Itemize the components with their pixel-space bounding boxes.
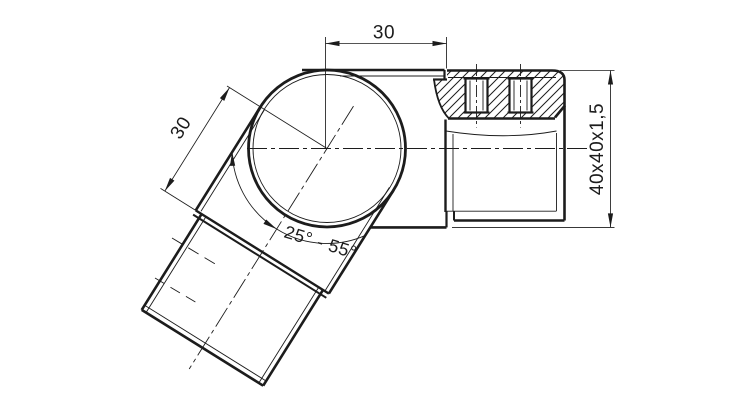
technical-drawing-svg: 30 30 25° - 55° 40x40x1,5 (0, 0, 732, 413)
clamp-block (434, 71, 565, 119)
dimension-top: 30 (326, 23, 447, 149)
socket-transition-curve (446, 131, 557, 136)
dim-top-width: 30 (373, 23, 395, 44)
dim-side-length: 30 (167, 113, 197, 143)
dim-side-line (165, 88, 230, 192)
tube-upper-edge (142, 214, 202, 310)
dimension-side: 30 (161, 86, 328, 210)
dim-arrow (433, 41, 447, 46)
dim-side-ext-upper (227, 86, 327, 149)
square-tube-socket (446, 106, 565, 221)
dim-tube-size: 40x40x1,5 (587, 103, 608, 195)
hidden-edge-2 (155, 278, 197, 303)
dim-arrow (326, 41, 340, 46)
housing-upper-edge (196, 107, 261, 210)
dim-arrow (220, 86, 232, 101)
cad-drawing-canvas: 30 30 25° - 55° 40x40x1,5 (0, 0, 732, 413)
dim-arrow (163, 178, 175, 193)
dim-arrow (608, 213, 613, 227)
dim-side-ext-lower (161, 188, 196, 210)
tube-lower-edge-inner (259, 287, 319, 383)
dim-arrow (608, 71, 613, 85)
tube-lower-edge (263, 290, 323, 386)
tube-upper-edge-inner (146, 217, 206, 313)
